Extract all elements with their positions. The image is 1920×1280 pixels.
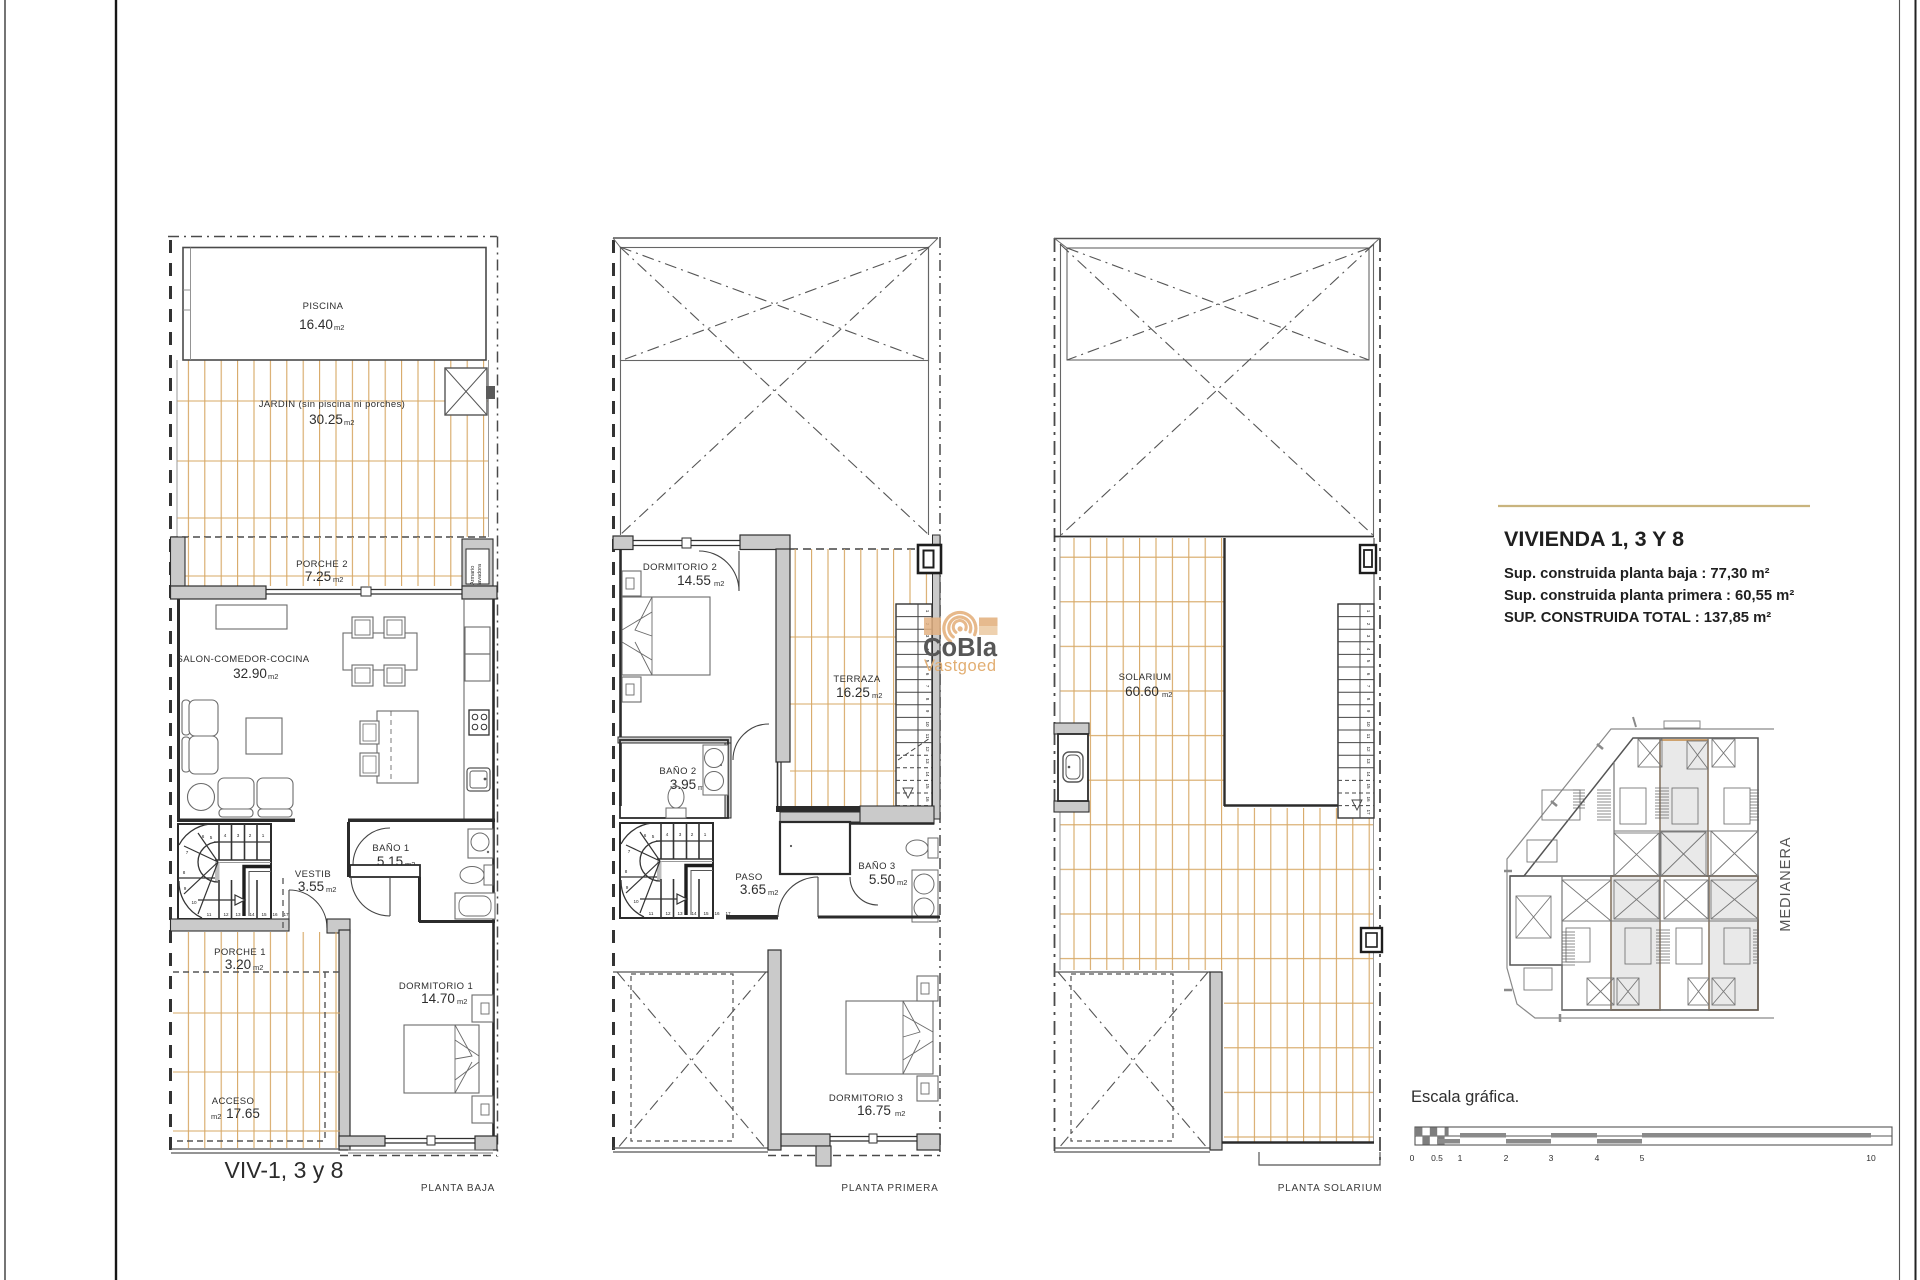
svg-text:PISCINA: PISCINA bbox=[303, 301, 344, 312]
svg-text:5: 5 bbox=[1366, 660, 1371, 663]
svg-text:m2: m2 bbox=[333, 575, 343, 584]
svg-text:Sup. construida planta baja :: Sup. construida planta baja : 77,30 m² bbox=[1504, 566, 1770, 582]
svg-text:m2: m2 bbox=[334, 323, 344, 332]
svg-text:m2: m2 bbox=[714, 579, 724, 588]
svg-text:m2: m2 bbox=[1162, 690, 1172, 699]
svg-text:1: 1 bbox=[1366, 610, 1371, 613]
svg-text:10: 10 bbox=[925, 721, 930, 727]
svg-text:17: 17 bbox=[1366, 809, 1371, 815]
svg-text:5.50: 5.50 bbox=[869, 872, 895, 887]
svg-text:3: 3 bbox=[1366, 635, 1371, 638]
svg-text:16: 16 bbox=[925, 796, 930, 802]
svg-text:m2: m2 bbox=[253, 963, 263, 972]
svg-text:0.5: 0.5 bbox=[1431, 1153, 1443, 1163]
svg-text:PLANTA SOLARIUM: PLANTA SOLARIUM bbox=[1278, 1183, 1383, 1194]
svg-text:17.65: 17.65 bbox=[226, 1106, 260, 1121]
svg-text:9: 9 bbox=[925, 710, 930, 713]
svg-text:6: 6 bbox=[1366, 673, 1371, 676]
svg-text:7: 7 bbox=[1366, 685, 1371, 688]
svg-text:11: 11 bbox=[1366, 734, 1371, 739]
svg-text:BAÑO 1: BAÑO 1 bbox=[372, 843, 409, 854]
svg-text:Sup. construida planta primera: Sup. construida planta primera : 60,55 m… bbox=[1504, 588, 1794, 604]
svg-text:5: 5 bbox=[1640, 1153, 1645, 1163]
svg-text:3.95: 3.95 bbox=[670, 777, 696, 792]
svg-text:PLANTA BAJA: PLANTA BAJA bbox=[421, 1183, 495, 1194]
svg-text:9: 9 bbox=[1366, 710, 1371, 713]
svg-text:DORMITORIO 2: DORMITORIO 2 bbox=[643, 562, 717, 573]
svg-text:SALON-COMEDOR-COCINA: SALON-COMEDOR-COCINA bbox=[176, 654, 309, 665]
svg-text:4: 4 bbox=[1366, 648, 1371, 651]
svg-text:Vastgoed: Vastgoed bbox=[924, 657, 996, 675]
svg-text:4: 4 bbox=[1595, 1153, 1600, 1163]
svg-text:60.60: 60.60 bbox=[1125, 684, 1159, 699]
svg-text:m2: m2 bbox=[895, 1109, 905, 1118]
svg-text:1: 1 bbox=[1458, 1153, 1463, 1163]
svg-text:m2: m2 bbox=[897, 878, 907, 887]
svg-text:SUP. CONSTRUIDA TOTAL : 137,85: SUP. CONSTRUIDA TOTAL : 137,85 m² bbox=[1504, 610, 1771, 626]
svg-text:MEDIANERA: MEDIANERA bbox=[1778, 836, 1794, 931]
svg-text:14.70: 14.70 bbox=[421, 991, 455, 1006]
svg-text:14.55: 14.55 bbox=[677, 573, 711, 588]
svg-text:Escala gráfica.: Escala gráfica. bbox=[1411, 1088, 1519, 1106]
svg-text:11: 11 bbox=[925, 734, 930, 739]
svg-text:7.25: 7.25 bbox=[305, 569, 331, 584]
svg-text:lavadora: lavadora bbox=[477, 563, 483, 585]
svg-text:13: 13 bbox=[925, 758, 930, 764]
svg-text:1: 1 bbox=[925, 610, 930, 613]
svg-text:8: 8 bbox=[925, 698, 930, 701]
svg-text:3: 3 bbox=[1549, 1153, 1554, 1163]
svg-text:BAÑO 3: BAÑO 3 bbox=[858, 861, 895, 872]
svg-text:16.25: 16.25 bbox=[836, 685, 870, 700]
svg-text:13: 13 bbox=[1366, 758, 1371, 764]
svg-text:16.75: 16.75 bbox=[857, 1103, 891, 1118]
svg-text:JARDIN (sin piscina ni porches: JARDIN (sin piscina ni porches) bbox=[259, 399, 406, 410]
svg-text:SOLARIUM: SOLARIUM bbox=[1119, 672, 1172, 683]
svg-text:VIVIENDA 1, 3 Y 8: VIVIENDA 1, 3 Y 8 bbox=[1504, 527, 1684, 551]
svg-text:10: 10 bbox=[1866, 1153, 1876, 1163]
svg-text:m2: m2 bbox=[457, 997, 467, 1006]
svg-text:16: 16 bbox=[1366, 796, 1371, 802]
svg-text:15: 15 bbox=[925, 783, 930, 789]
svg-text:3.20: 3.20 bbox=[225, 957, 251, 972]
svg-text:8: 8 bbox=[1366, 698, 1371, 701]
svg-text:m2: m2 bbox=[211, 1112, 221, 1121]
svg-text:m2: m2 bbox=[344, 418, 354, 427]
svg-text:BAÑO 2: BAÑO 2 bbox=[659, 766, 696, 777]
svg-text:PLANTA PRIMERA: PLANTA PRIMERA bbox=[841, 1183, 938, 1194]
svg-text:m2: m2 bbox=[872, 691, 882, 700]
svg-text:2: 2 bbox=[1504, 1153, 1509, 1163]
svg-text:12: 12 bbox=[1366, 746, 1371, 752]
svg-text:m2: m2 bbox=[268, 672, 278, 681]
svg-text:0: 0 bbox=[1410, 1153, 1415, 1163]
svg-text:VIV-1, 3 y 8: VIV-1, 3 y 8 bbox=[225, 1157, 344, 1183]
svg-text:7: 7 bbox=[925, 685, 930, 688]
svg-text:14: 14 bbox=[925, 771, 930, 777]
svg-text:2: 2 bbox=[1366, 623, 1371, 626]
svg-text:15: 15 bbox=[1366, 783, 1371, 789]
svg-text:30.25: 30.25 bbox=[309, 412, 343, 427]
svg-text:10: 10 bbox=[1366, 721, 1371, 727]
svg-text:m2: m2 bbox=[326, 885, 336, 894]
svg-text:3.65: 3.65 bbox=[740, 882, 766, 897]
svg-text:14: 14 bbox=[1366, 771, 1371, 777]
svg-text:3.55: 3.55 bbox=[298, 879, 324, 894]
svg-text:12: 12 bbox=[925, 746, 930, 752]
svg-text:TERRAZA: TERRAZA bbox=[833, 674, 880, 685]
svg-text:16.40: 16.40 bbox=[299, 317, 333, 332]
svg-text:Armario: Armario bbox=[470, 566, 476, 585]
svg-text:32.90: 32.90 bbox=[233, 666, 267, 681]
svg-text:m2: m2 bbox=[768, 888, 778, 897]
